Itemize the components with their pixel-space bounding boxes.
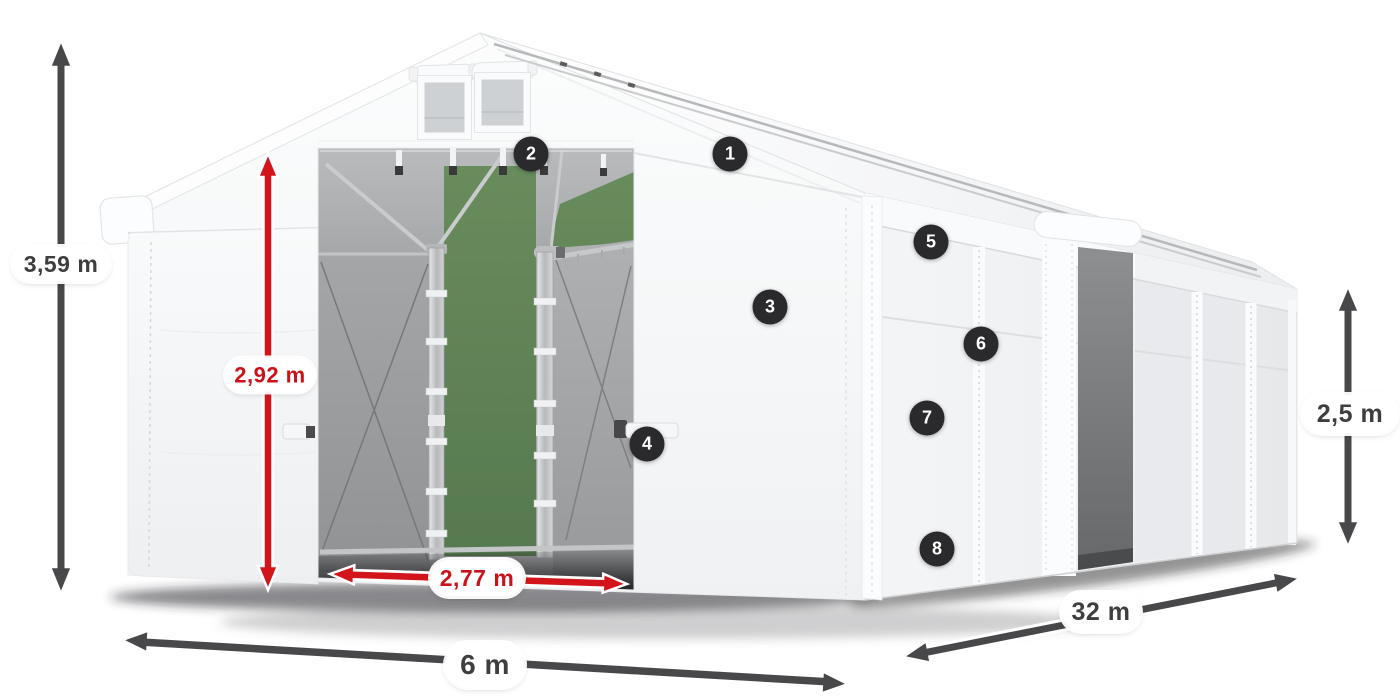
callout-badge-1[interactable]: 1 bbox=[713, 137, 748, 172]
label-door-width: 2,77 m bbox=[431, 560, 523, 596]
gable-vent-left bbox=[409, 64, 478, 140]
gable-vent-right bbox=[472, 61, 537, 133]
callout-badge-3[interactable]: 3 bbox=[753, 290, 788, 325]
label-door-height: 2,92 m bbox=[226, 359, 314, 392]
callout-badge-8[interactable]: 8 bbox=[920, 532, 955, 567]
interior-right-wall bbox=[553, 242, 634, 582]
label-length: 32 m bbox=[1062, 593, 1140, 631]
doorframe-pole-left bbox=[426, 244, 447, 560]
callout-badge-6[interactable]: 6 bbox=[964, 327, 999, 362]
callout-badge-2[interactable]: 2 bbox=[514, 137, 549, 172]
label-side-height: 2,5 m bbox=[1303, 395, 1397, 433]
callout-badge-4[interactable]: 4 bbox=[630, 427, 665, 462]
product-diagram-stage: 3,59 m 2,92 m 2,77 m 6 m 32 m 2,5 m 1 2 … bbox=[0, 0, 1400, 700]
callout-badge-7[interactable]: 7 bbox=[910, 401, 945, 436]
tent-illustration bbox=[0, 0, 1400, 700]
callout-badge-5[interactable]: 5 bbox=[914, 225, 949, 260]
side-door-opening bbox=[1078, 247, 1133, 570]
left-door-leaf bbox=[128, 228, 318, 584]
arrow-total-height bbox=[50, 40, 72, 594]
pass-through-gap bbox=[444, 166, 536, 556]
doorway-interior bbox=[318, 148, 637, 590]
label-total-height: 3,59 m bbox=[13, 247, 109, 281]
label-front-width: 6 m bbox=[446, 643, 524, 687]
left-door-handle bbox=[283, 424, 315, 439]
